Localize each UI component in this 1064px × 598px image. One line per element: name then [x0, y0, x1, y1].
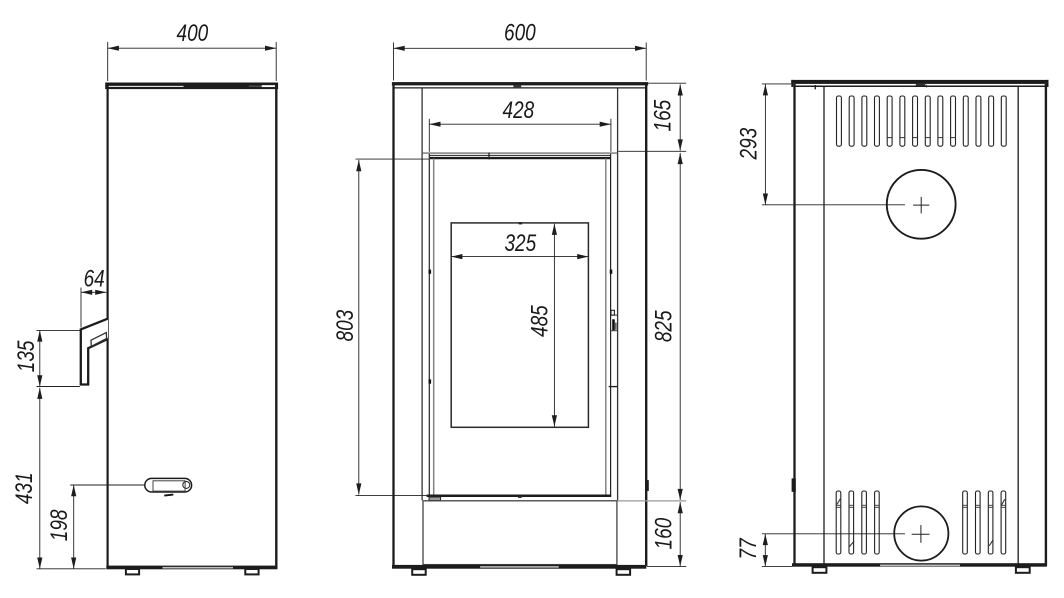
svg-text:198: 198 [46, 509, 73, 541]
svg-text:600: 600 [504, 19, 536, 46]
svg-text:803: 803 [332, 309, 359, 341]
svg-text:77: 77 [735, 538, 762, 560]
svg-text:400: 400 [177, 20, 209, 47]
svg-text:485: 485 [526, 305, 553, 337]
svg-text:293: 293 [736, 127, 763, 160]
svg-text:64: 64 [84, 266, 105, 293]
svg-text:825: 825 [651, 310, 678, 342]
svg-text:325: 325 [504, 230, 536, 257]
svg-text:431: 431 [11, 472, 38, 504]
svg-text:428: 428 [503, 97, 535, 124]
svg-text:135: 135 [13, 340, 40, 372]
svg-text:160: 160 [651, 517, 678, 549]
svg-text:165: 165 [650, 99, 677, 131]
